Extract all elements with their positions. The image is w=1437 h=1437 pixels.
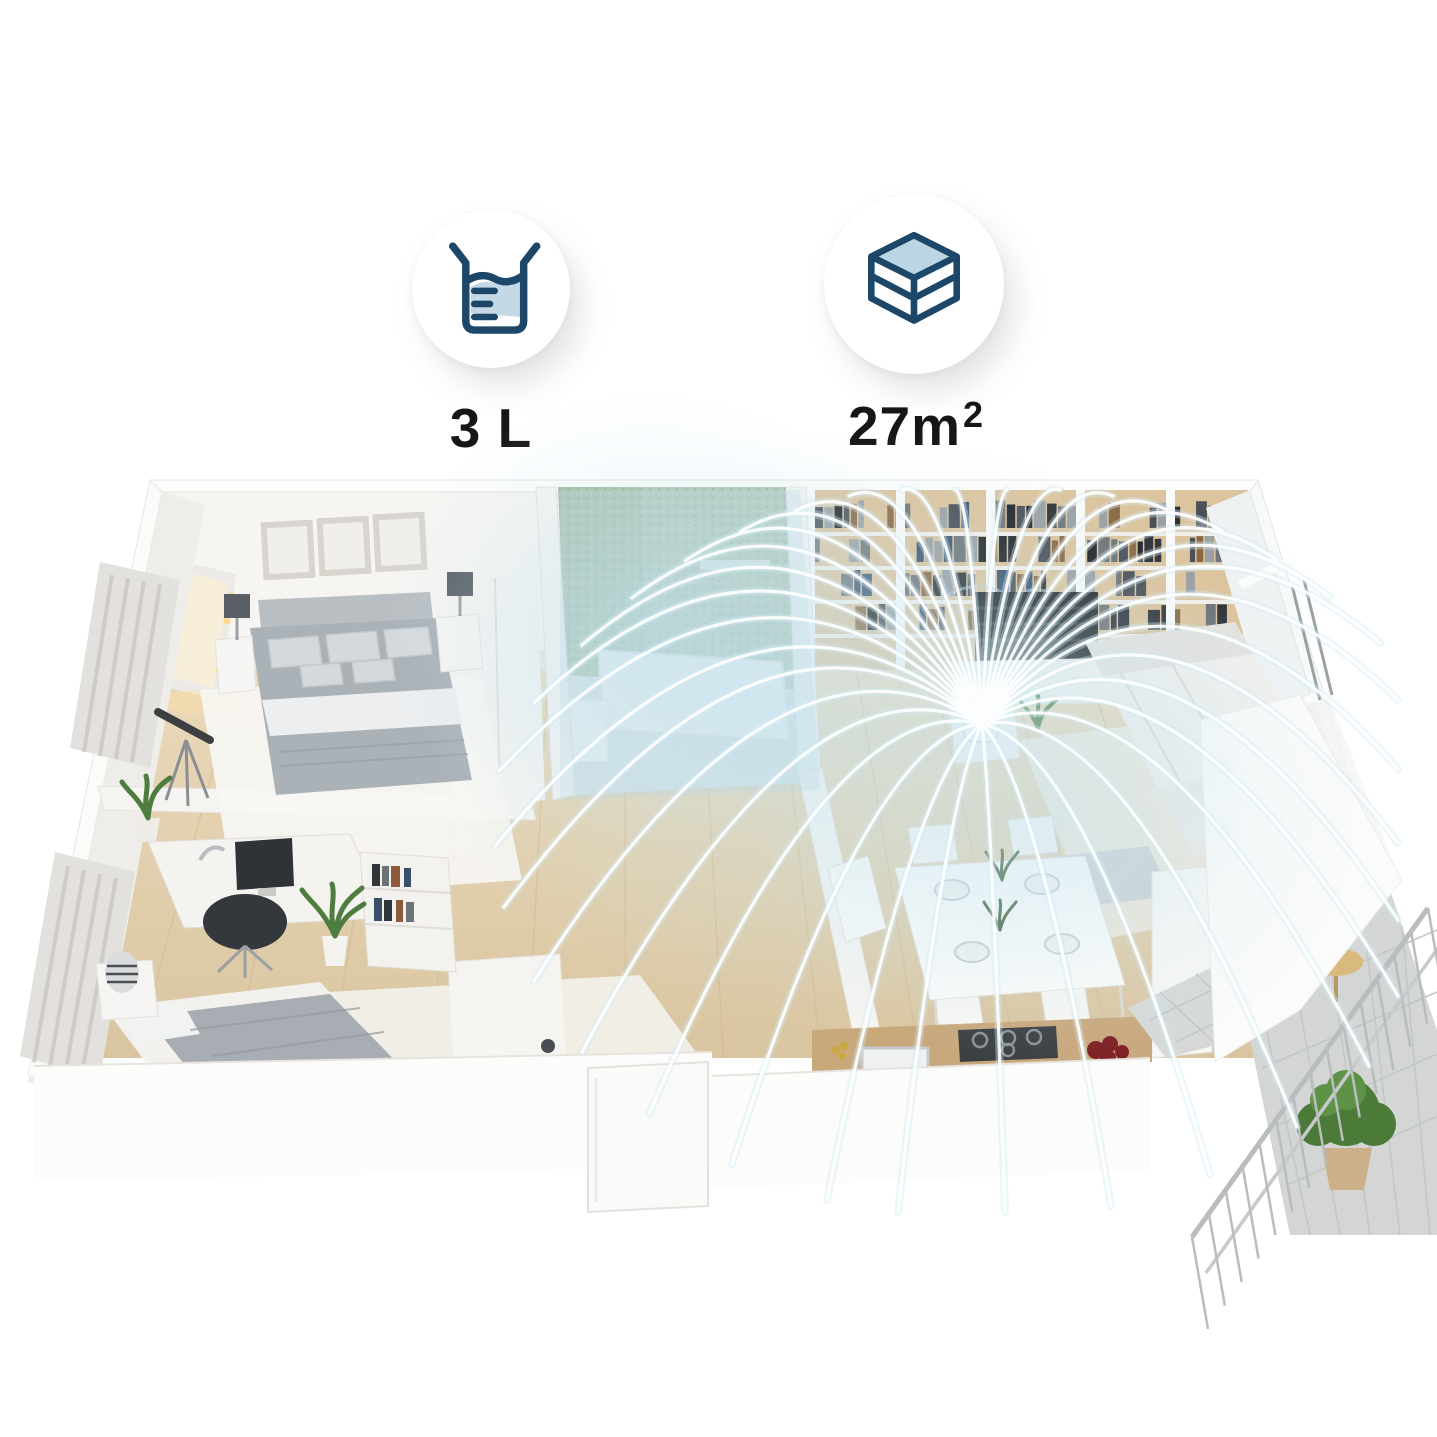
apartment-render bbox=[0, 0, 1437, 1437]
product-infographic: 3 L 27m2 bbox=[0, 0, 1437, 1437]
basket-lamp bbox=[105, 951, 139, 993]
front-wall bbox=[34, 1052, 1150, 1212]
shoes bbox=[541, 1039, 555, 1053]
monitor bbox=[235, 838, 294, 890]
office-chair bbox=[203, 894, 287, 950]
nightstand bbox=[215, 636, 256, 694]
entrance-door bbox=[588, 1062, 708, 1212]
